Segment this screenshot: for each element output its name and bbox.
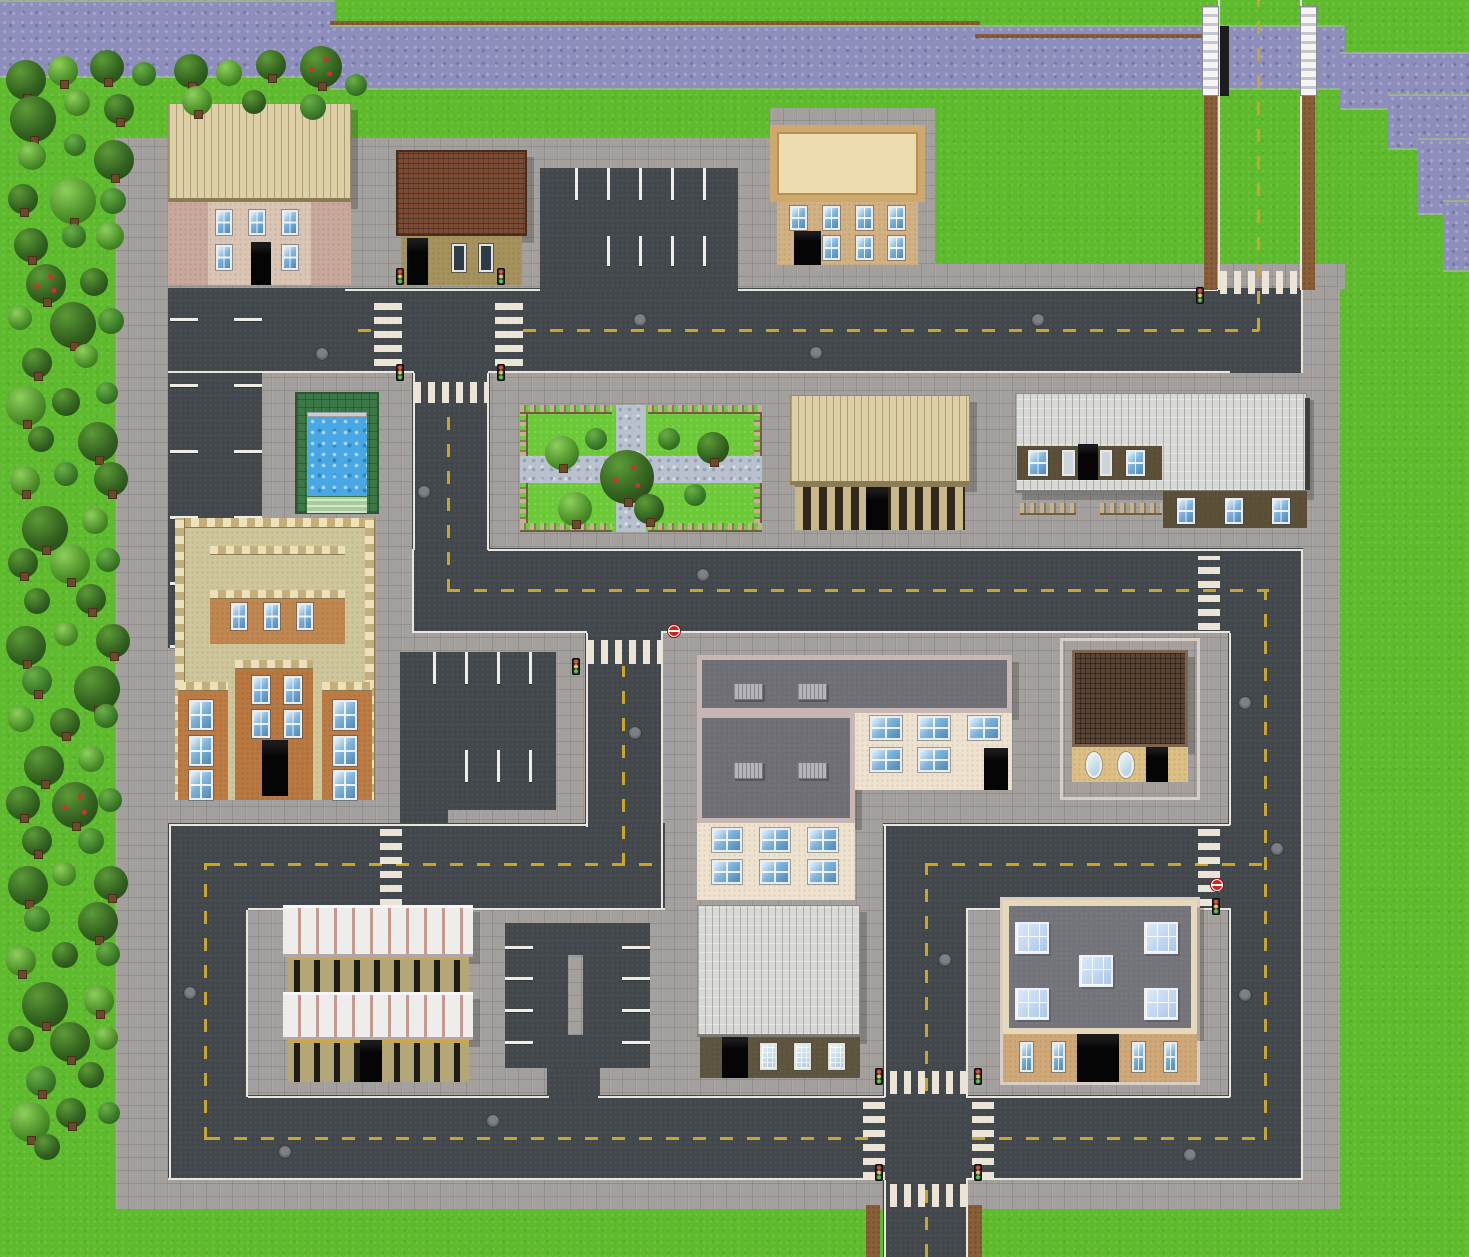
edge-line (488, 371, 1230, 373)
tree (6, 60, 46, 100)
park-fence (648, 523, 762, 532)
tree (132, 62, 156, 86)
tree (26, 1066, 56, 1096)
tree (96, 624, 130, 658)
manhole (183, 986, 197, 1000)
traffic-light (875, 1164, 883, 1181)
tree (78, 902, 118, 942)
center-dash (523, 329, 1259, 332)
manhole (486, 1114, 500, 1128)
parking-stripe (505, 946, 533, 949)
edge-line (169, 824, 171, 1180)
edge-line (966, 1096, 1230, 1098)
edge-line (412, 631, 587, 633)
parking-stripe (505, 977, 533, 980)
pool-apron (307, 497, 367, 513)
crosswalk (890, 1071, 967, 1094)
window (790, 206, 807, 230)
edge-line (488, 549, 1303, 551)
center-dash (204, 863, 207, 1140)
traffic-light (974, 1164, 982, 1181)
tree (22, 982, 68, 1028)
tree (74, 344, 98, 368)
parking-stripe (671, 168, 674, 200)
tree (8, 306, 32, 330)
tree (52, 388, 80, 416)
parking-stripe (170, 318, 198, 321)
window (1028, 450, 1048, 476)
hotel-tower-crenel (322, 682, 372, 691)
edge-line (966, 910, 968, 1097)
window (1164, 1042, 1177, 1072)
tree (8, 706, 34, 732)
yard-fence (1100, 503, 1162, 515)
hotel-tower-crenel (235, 660, 313, 669)
traffic-light (974, 1068, 982, 1085)
window (823, 206, 840, 230)
park-fence (648, 405, 762, 414)
tree (90, 50, 124, 84)
traffic-light (497, 268, 505, 285)
apartment-roof-glass (283, 992, 473, 1040)
door-warehouse-mid[interactable] (866, 487, 888, 530)
edge-line (412, 549, 414, 633)
window (870, 716, 902, 740)
window (231, 603, 247, 630)
tree (54, 622, 78, 646)
tree (50, 1022, 90, 1062)
crosswalk (1220, 271, 1301, 294)
manhole (938, 953, 952, 967)
parking-stripe (497, 750, 500, 782)
office-roof-west (697, 713, 855, 823)
warehouse-south-roof (697, 905, 860, 1037)
edge-line (1229, 908, 1231, 1097)
manhole (1238, 696, 1252, 710)
traffic-light (875, 1068, 883, 1085)
drainpipe (1305, 398, 1310, 490)
window (968, 716, 1000, 740)
tree (345, 74, 367, 96)
hotel-wall-crenel (175, 518, 375, 528)
manhole (278, 1145, 292, 1159)
crosswalk (414, 382, 488, 403)
skylight (1144, 922, 1178, 954)
house-north-roof (770, 125, 925, 202)
tree (18, 142, 46, 170)
tree (76, 584, 106, 614)
tree (8, 184, 38, 214)
warehouse-nw-wall (168, 202, 208, 285)
edge-line (661, 824, 663, 910)
edge-line (884, 824, 886, 1097)
window (918, 748, 950, 772)
door-house-north[interactable] (794, 231, 821, 265)
tree (8, 1026, 34, 1052)
window (1118, 752, 1134, 778)
window (1020, 1042, 1033, 1072)
park-fence (520, 523, 612, 532)
tree (34, 1134, 60, 1160)
park-bush (684, 484, 706, 506)
window (1062, 450, 1075, 476)
manhole (696, 568, 710, 582)
tree (78, 1062, 104, 1088)
parking-stripe (639, 236, 642, 266)
parking-stripe (234, 450, 262, 453)
parking-stripe (622, 977, 650, 980)
tree (82, 508, 108, 534)
tree (94, 704, 118, 728)
tree (300, 46, 342, 88)
tree (22, 666, 52, 696)
parking-stripe (465, 652, 468, 684)
window (284, 710, 302, 738)
crosswalk (587, 640, 662, 664)
ac-unit (797, 762, 827, 779)
hotel-inner-crenel (210, 546, 345, 555)
tree (52, 782, 98, 828)
tree (28, 426, 54, 452)
crosswalk (495, 296, 523, 366)
window (712, 860, 742, 884)
tree (182, 86, 212, 116)
edge-line (169, 824, 587, 826)
tree (56, 1098, 86, 1128)
tree (78, 422, 118, 462)
window (870, 748, 902, 772)
tree (24, 906, 50, 932)
parking-stripe (703, 168, 706, 200)
warehouse-mid-roof (790, 395, 970, 485)
window (1100, 450, 1112, 476)
tree (104, 94, 134, 124)
warehouse-nw-wall (311, 202, 351, 285)
manhole (417, 485, 431, 499)
tree (24, 746, 64, 786)
window (297, 603, 313, 630)
park-fence (754, 483, 762, 523)
traffic-light (1212, 898, 1220, 915)
edge-line (1229, 633, 1231, 825)
crosswalk (380, 827, 402, 906)
window (1225, 498, 1243, 524)
door-apartment[interactable] (360, 1040, 382, 1082)
window (282, 245, 298, 270)
skylight (1079, 955, 1113, 987)
bridge-railing (1202, 6, 1219, 96)
traffic-light (396, 364, 404, 381)
parking-stripe (529, 750, 532, 782)
manhole (1031, 313, 1045, 327)
tree (10, 466, 40, 496)
parking-stripe (433, 652, 436, 684)
tree (84, 986, 114, 1016)
hotel-inner-crenel (210, 590, 345, 599)
center-dash (207, 863, 659, 866)
window (452, 244, 466, 272)
park-bush (658, 428, 680, 450)
tree (300, 94, 326, 120)
tree (100, 188, 126, 214)
traffic-light (396, 268, 404, 285)
manhole (633, 313, 647, 327)
tree (94, 462, 128, 496)
park-bush (585, 428, 607, 450)
parking-stripe (234, 384, 262, 387)
edge-line (661, 631, 1230, 633)
parking-stripe (505, 1041, 533, 1044)
yard-fence (1020, 503, 1076, 515)
parking-stripe (622, 946, 650, 949)
parking-stripe (622, 1041, 650, 1044)
tree (96, 222, 124, 250)
ac-unit (797, 683, 827, 700)
edge-line (738, 289, 1218, 291)
window (808, 860, 838, 884)
tree (24, 588, 50, 614)
town-map (0, 0, 1469, 1257)
door-cottage[interactable] (1146, 747, 1168, 782)
window (189, 700, 213, 730)
crosswalk (1198, 827, 1220, 906)
parking-stripe (622, 1009, 650, 1012)
manhole (1183, 1148, 1197, 1162)
manhole (315, 347, 329, 361)
window (264, 603, 280, 630)
park-tree (634, 494, 664, 524)
hotel-tower-crenel (178, 682, 228, 691)
pool-water (307, 416, 367, 496)
center-dash (447, 589, 1269, 592)
tree (96, 382, 118, 404)
ac-unit (733, 683, 763, 700)
river-east-4 (1443, 200, 1469, 272)
window (918, 716, 950, 740)
house-brown-roof (396, 150, 527, 236)
tree (96, 942, 120, 966)
edge-line (1301, 289, 1303, 373)
parking-lot-central (400, 652, 556, 810)
window (1177, 498, 1195, 524)
tree (52, 942, 78, 968)
parking-entry (400, 800, 448, 825)
skylight (1144, 988, 1178, 1020)
tree (14, 228, 48, 262)
tree (96, 548, 120, 572)
crosswalk (890, 1184, 967, 1207)
tree (64, 134, 86, 156)
tree (78, 746, 104, 772)
window (252, 676, 270, 704)
manhole (1238, 988, 1252, 1002)
window (282, 210, 298, 235)
skylight (1015, 922, 1049, 954)
tree (62, 224, 86, 248)
window (1086, 752, 1102, 778)
window (479, 244, 493, 272)
parking-stripe (465, 750, 468, 782)
window (1272, 498, 1290, 524)
door-hotel[interactable] (262, 740, 288, 796)
window (249, 210, 265, 235)
window (888, 236, 905, 260)
tree (6, 386, 46, 426)
edge-line (168, 371, 414, 373)
traffic-light (1196, 287, 1204, 304)
tree (74, 666, 120, 712)
parking-stripe (170, 384, 198, 387)
window (252, 710, 270, 738)
window (189, 770, 213, 800)
park-fence (520, 414, 528, 456)
window (828, 1043, 845, 1070)
park-fence (754, 414, 762, 456)
window (333, 736, 357, 766)
tree (98, 308, 124, 334)
window (712, 828, 742, 852)
tree (6, 626, 46, 666)
edge-line (168, 1178, 885, 1180)
tree (50, 544, 90, 584)
door-house-brown[interactable] (407, 238, 428, 285)
tree (94, 140, 134, 180)
park-fence (520, 405, 612, 414)
tree (6, 786, 40, 820)
skylight (1015, 988, 1049, 1020)
window (794, 1043, 811, 1070)
tree (80, 268, 108, 296)
window (888, 206, 905, 230)
traffic-light (572, 658, 580, 675)
parking-stripe (170, 450, 198, 453)
park-fence (520, 483, 528, 523)
window (333, 700, 357, 730)
park-tree (558, 492, 592, 526)
window (284, 676, 302, 704)
crosswalk (374, 296, 402, 366)
parking-stripe (234, 318, 262, 321)
parking-stripe (607, 168, 610, 200)
tree (242, 90, 266, 114)
tree (94, 866, 128, 900)
parking-stripe (607, 236, 610, 266)
tree (8, 548, 38, 578)
edge-line (345, 289, 540, 291)
tree (216, 60, 242, 86)
window (856, 206, 873, 230)
pool-ladder-rail (307, 412, 367, 417)
tree (48, 56, 78, 86)
manhole (628, 726, 642, 740)
cottage-roof (1072, 650, 1188, 747)
parking-stripe (529, 652, 532, 684)
window (216, 210, 232, 235)
window (1126, 450, 1145, 476)
tree (78, 828, 104, 854)
river-bank (975, 34, 1211, 38)
manhole (1270, 842, 1284, 856)
window (189, 736, 213, 766)
center-dash (447, 408, 450, 592)
parking-stripe (575, 168, 578, 200)
tree (94, 1026, 118, 1050)
window (823, 236, 840, 260)
tree (54, 462, 78, 486)
parking-stripe (703, 236, 706, 266)
edge-line (246, 910, 248, 1097)
parking-stripe (505, 1009, 533, 1012)
apartment-roof-glass (283, 905, 473, 957)
door-warehouse-nw[interactable] (251, 242, 271, 285)
edge-line (966, 1178, 1303, 1180)
window (1052, 1042, 1065, 1072)
tree (50, 708, 80, 738)
bridge-shadow-bar (1220, 26, 1229, 96)
tree (22, 826, 52, 856)
bridge-railing (1300, 6, 1317, 96)
center-dash (925, 863, 928, 1091)
tree (98, 1102, 120, 1124)
parking-stripe (497, 652, 500, 684)
parking-median (568, 955, 583, 1035)
edge-line (598, 1096, 885, 1098)
center-dash (207, 1137, 879, 1140)
parking-stripe (671, 236, 674, 266)
window (216, 245, 232, 270)
door-warehouse-south[interactable] (722, 1037, 748, 1078)
tree (52, 862, 76, 886)
tree (64, 90, 90, 116)
park-tree (697, 432, 729, 464)
road-shoulder (1302, 96, 1315, 290)
window (808, 828, 838, 852)
tree (10, 96, 56, 142)
tree (50, 178, 96, 224)
crosswalk (1198, 556, 1220, 630)
stop-sign (668, 625, 680, 637)
parking-stripe (639, 168, 642, 200)
stop-sign (1211, 879, 1223, 891)
window (1132, 1042, 1145, 1072)
window (856, 236, 873, 260)
tree (22, 348, 52, 378)
edge-line (1301, 550, 1303, 1180)
tree (174, 54, 208, 88)
door-depot[interactable] (1077, 1034, 1119, 1082)
tree (50, 302, 96, 348)
window (760, 828, 790, 852)
window (760, 1043, 777, 1070)
center-dash (622, 666, 625, 866)
edge-line (248, 1096, 549, 1098)
tree (8, 866, 48, 906)
door-warehouse-ne[interactable] (1078, 444, 1098, 480)
apartment-wall (287, 957, 469, 992)
park-tree (545, 436, 579, 470)
tree (6, 946, 36, 976)
window (760, 860, 790, 884)
road-shoulder (866, 1205, 880, 1257)
door-office-east[interactable] (984, 748, 1008, 790)
edge-line (884, 1180, 886, 1257)
road-shoulder (968, 1205, 982, 1257)
parking-entry (547, 1068, 600, 1098)
center-dash (972, 1137, 1267, 1140)
ac-unit (733, 762, 763, 779)
tree (98, 788, 122, 812)
tree (26, 264, 66, 304)
